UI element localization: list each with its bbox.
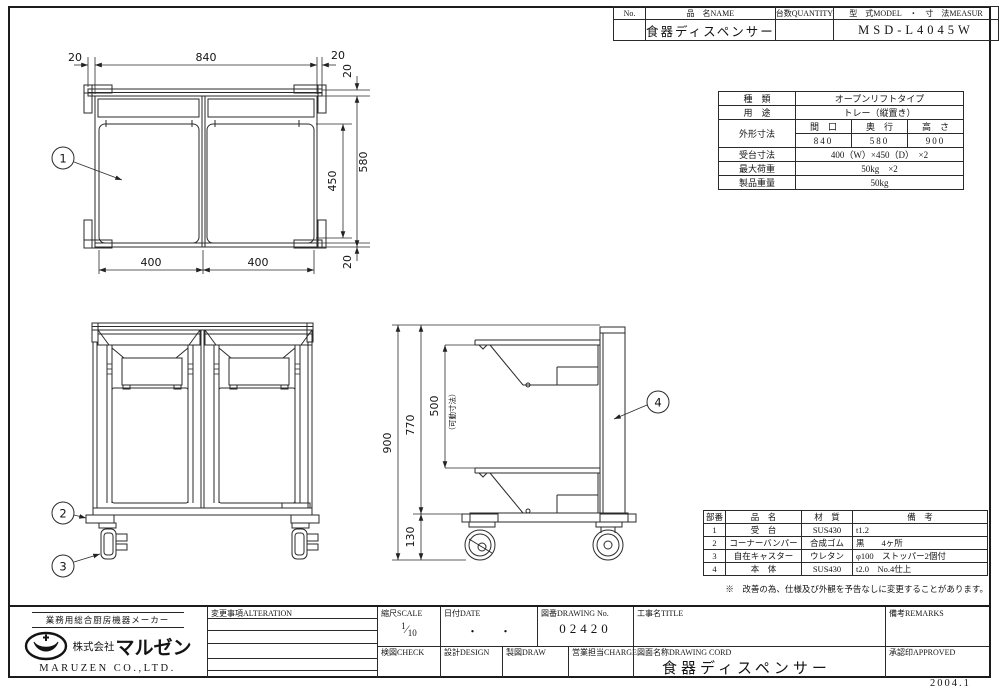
approved-cell: 承認印APPROVED: [885, 646, 989, 678]
table-row: 1 受 台 SUS430 t1.2: [704, 524, 988, 537]
spec-depth-value: 580: [852, 134, 908, 148]
check-label: 検図CHECK: [381, 647, 424, 658]
spec-use-label: 用 途: [719, 106, 796, 120]
spec-weight-label: 製品重量: [719, 176, 796, 190]
header-no-label: No.: [614, 7, 646, 20]
drawing-no-cell: 図番DRAWING No. 02420: [537, 607, 633, 646]
table-row: 3 自在キャスター ウレタン φ100 ストッパー2個付: [704, 550, 988, 563]
alteration-column: 変更事項ALTERATION: [207, 607, 377, 678]
product-name: 食器ディスペンサー: [645, 20, 775, 41]
date-label: 日付DATE: [444, 608, 480, 619]
spec-basedim-label: 受台寸法: [719, 148, 796, 162]
company-name-prefix: 株式会社: [72, 639, 114, 654]
part-no: 4: [704, 563, 726, 576]
draw-label: 製図DRAW: [506, 647, 546, 658]
part-name: 本 体: [726, 563, 802, 576]
header-no-value: [614, 20, 646, 41]
parts-name-header: 品 名: [726, 511, 802, 524]
header-model-label: 型 式MODEL ・ 寸 法MEASUR: [834, 7, 999, 20]
part-material: 合成ゴム: [802, 537, 853, 550]
project-title-label: 工事名TITLE: [637, 608, 683, 619]
part-name: コーナーバンパー: [726, 537, 802, 550]
header-name-label: 品 名NAME: [645, 7, 775, 20]
part-remarks: t1.2: [853, 524, 988, 537]
spec-maxload-label: 最大荷重: [719, 162, 796, 176]
part-material: SUS430: [802, 524, 853, 537]
part-remarks: t2.0 No.4仕上: [853, 563, 988, 576]
company-logotype: マルゼン: [115, 633, 191, 660]
parts-no-header: 部番: [704, 511, 726, 524]
table-row: 2 コーナーバンパー 合成ゴム 黒 4ヶ所: [704, 537, 988, 550]
spec-use-value: トレー（縦置き）: [796, 106, 964, 120]
drawing-no-label: 図番DRAWING No.: [541, 608, 609, 619]
date-cell: 日付DATE ・ ・: [440, 607, 537, 646]
header-qty-label: 台数QUANTITY: [775, 7, 833, 20]
scale-cell: 縮尺SCALE 1⁄10: [377, 607, 440, 646]
spec-maxload-value: 50kg ×2: [796, 162, 964, 176]
project-title-cell: 工事名TITLE: [633, 607, 885, 646]
spec-height-value: 900: [908, 134, 964, 148]
maruzen-logo-icon: [23, 631, 69, 661]
drawing-name-value: 食器ディスペンサー: [662, 657, 885, 678]
parts-table: 部番 品 名 材 質 備 考 1 受 台 SUS430 t1.2 2 コーナーバ…: [703, 510, 988, 576]
company-block: 業務用総合厨房機器メーカー 株式会社 マルゼン MARUZEN CO.,LTD.: [8, 607, 207, 678]
disclaimer-note: ※ 改善の為、仕様及び外観を予告なしに変更することがあります。: [700, 583, 988, 595]
part-material: SUS430: [802, 563, 853, 576]
part-no: 2: [704, 537, 726, 550]
remarks-label: 備考REMARKS: [889, 608, 944, 619]
charge-label: 営業担当CHARGE: [572, 647, 637, 658]
charge-cell: 営業担当CHARGE: [568, 646, 633, 678]
title-block: 業務用総合厨房機器メーカー 株式会社 マルゼン MARUZEN CO.,LTD.…: [8, 605, 989, 678]
part-remarks: φ100 ストッパー2個付: [853, 550, 988, 563]
remarks-cell: 備考REMARKS: [885, 607, 989, 646]
spec-table: 種 類 オープンリフトタイプ 用 途 トレー（縦置き） 外形寸法 間 口 奥 行…: [718, 91, 964, 190]
part-no: 3: [704, 550, 726, 563]
spec-kind-value: オープンリフトタイプ: [796, 92, 964, 106]
drawing-no-value: 02420: [538, 621, 633, 637]
table-row: 4 本 体 SUS430 t2.0 No.4仕上: [704, 563, 988, 576]
spec-weight-value: 50kg: [796, 176, 964, 190]
part-no: 1: [704, 524, 726, 537]
part-material: ウレタン: [802, 550, 853, 563]
drawing-name-cell: 図面名称DRAWING CORD 食器ディスペンサー: [633, 646, 885, 678]
spec-outerdim-label: 外形寸法: [719, 120, 796, 148]
part-name: 自在キャスター: [726, 550, 802, 563]
date-value: ・ ・: [441, 623, 537, 639]
check-cell: 検図CHECK: [377, 646, 440, 678]
parts-material-header: 材 質: [802, 511, 853, 524]
header-qty-value: [775, 20, 833, 41]
spec-width-label: 間 口: [796, 120, 852, 134]
spec-kind-label: 種 類: [719, 92, 796, 106]
company-tagline: 業務用総合厨房機器メーカー: [32, 612, 184, 628]
spec-width-value: 840: [796, 134, 852, 148]
approved-label: 承認印APPROVED: [889, 647, 955, 658]
model-number: MSD-L4045W: [834, 20, 999, 41]
spec-height-label: 高 さ: [908, 120, 964, 134]
parts-remarks-header: 備 考: [853, 511, 988, 524]
spec-depth-label: 奥 行: [852, 120, 908, 134]
header-table: No. 品 名NAME 台数QUANTITY 型 式MODEL ・ 寸 法MEA…: [613, 6, 999, 41]
scale-value: 1⁄10: [378, 621, 440, 638]
footer-date: 2004.1: [930, 678, 971, 689]
design-label: 設計DESIGN: [444, 647, 489, 658]
scale-label: 縮尺SCALE: [381, 608, 422, 619]
company-name-en: MARUZEN CO.,LTD.: [8, 663, 207, 674]
part-remarks: 黒 4ヶ所: [853, 537, 988, 550]
design-cell: 設計DESIGN: [440, 646, 502, 678]
part-name: 受 台: [726, 524, 802, 537]
draw-cell: 製図DRAW: [502, 646, 568, 678]
spec-basedim-value: 400（W）×450（D） ×2: [796, 148, 964, 162]
